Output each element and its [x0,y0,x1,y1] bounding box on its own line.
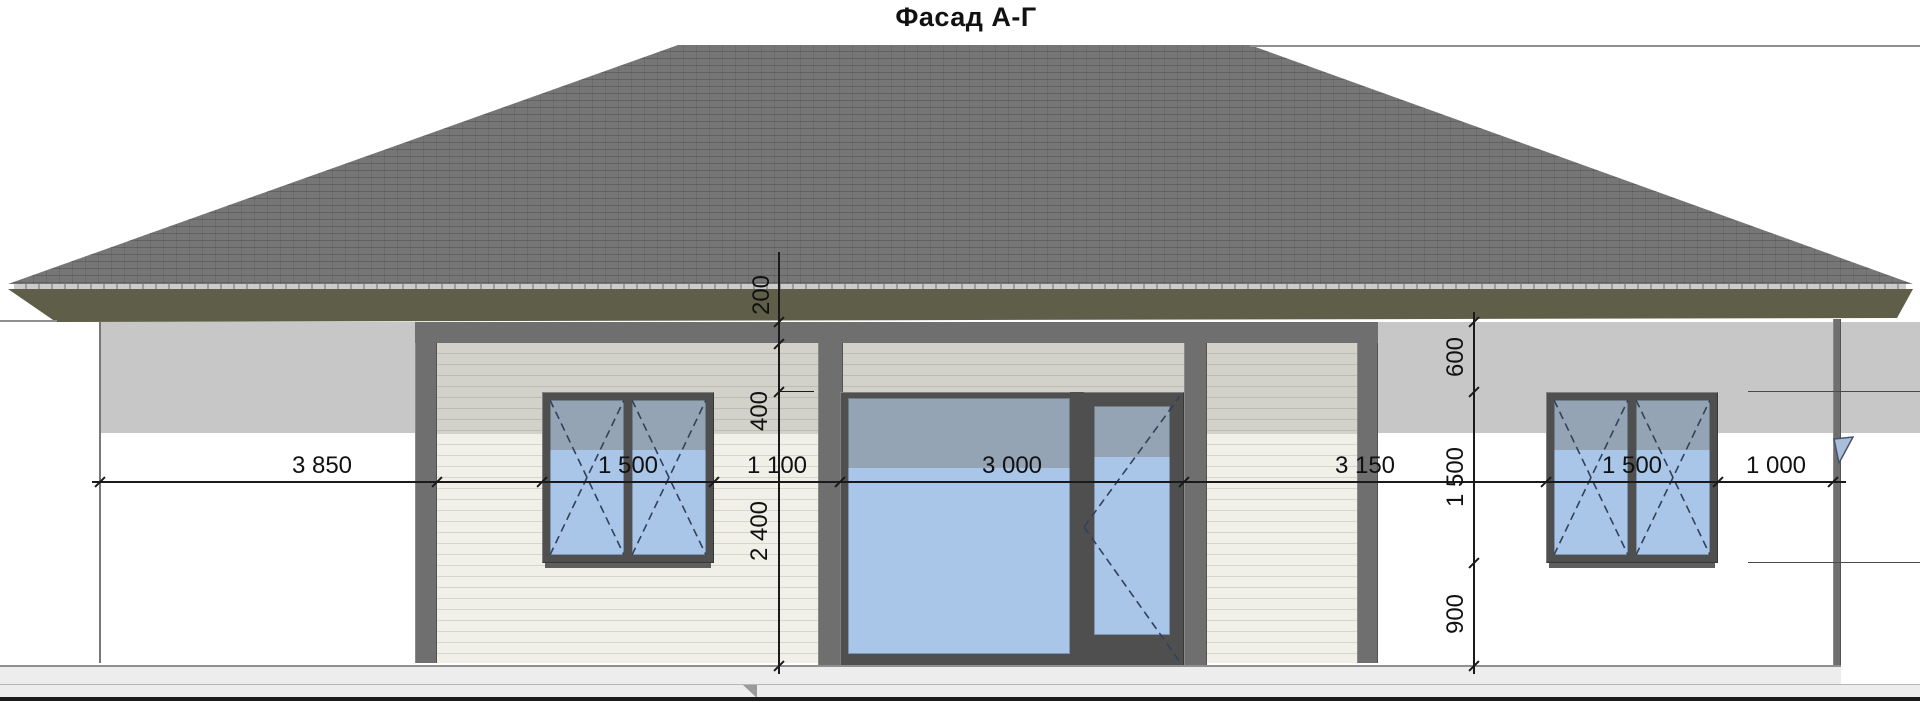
ground-section-line [0,697,1920,701]
corner-trim-right [1833,319,1841,666]
corner-edge-left [99,322,101,663]
dim-label-door-height: 2 400 [746,501,774,561]
dim-label-door: 3 000 [982,452,1042,480]
elevation-drawing: Фасад А-Г [0,0,1920,702]
ground-line-top [0,665,1841,667]
dim-label-wall-left: 3 850 [292,452,352,480]
header-beam [415,322,1378,344]
dim-extension-door-top [779,391,814,392]
door-jamb-post-right [1184,343,1207,665]
ground-right-gap [1841,666,1920,685]
door-mullion [1070,392,1084,666]
wall-left [100,322,415,663]
ground-line-second [0,684,1920,685]
ground-plinth-band [0,666,1920,697]
window-top-level-line [1748,391,1920,392]
dim-label-pier-right: 3 150 [1335,452,1395,480]
side-wall-return-lit [1841,433,1920,685]
dim-label-window-height: 1 500 [1442,447,1470,507]
dim-label-pier-left: 1 100 [747,452,807,480]
dimension-line-vertical-right [1473,312,1475,674]
door-swing-symbol [1084,394,1180,664]
dim-label-window-right: 1 500 [1602,452,1662,480]
door-lintel-siding [843,343,1184,392]
window-right-sill [1549,563,1715,568]
dim-label-eaves-band: 200 [748,275,776,315]
side-wall-return [1841,322,1920,685]
siding-panel-right [1207,343,1357,663]
dim-label-window-sill-height: 900 [1442,594,1470,634]
side-wall-return-shadow [1841,322,1920,433]
bay-post-outer-right [1357,343,1378,663]
wall-left-lit [100,433,415,663]
level-marker-triangle [1832,436,1856,466]
dim-label-wall-right: 1 000 [1746,452,1806,480]
wall-left-shadow [100,322,415,433]
entrance-door-unit [840,392,1184,666]
dimension-line-horizontal [92,481,1846,483]
dim-label-lintel: 400 [746,391,774,431]
window-bottom-level-line [1748,562,1920,563]
fixed-glazing [848,398,1070,654]
door-lintel-siding-shade [843,343,1184,392]
drawing-title: Фасад А-Г [666,2,1266,33]
window-left-sill [545,563,711,568]
siding-right-shadow [1207,343,1357,434]
eave-level-line-left [0,320,57,322]
fascia-board [8,289,1913,322]
ridge-level-line [1250,45,1920,47]
dimension-line-vertical-left [778,252,780,674]
dim-label-window-top-offset: 600 [1442,337,1470,377]
roof-tiles [8,45,1913,284]
dim-label-window-left: 1 500 [598,452,658,480]
bay-post-outer-left [415,343,437,663]
